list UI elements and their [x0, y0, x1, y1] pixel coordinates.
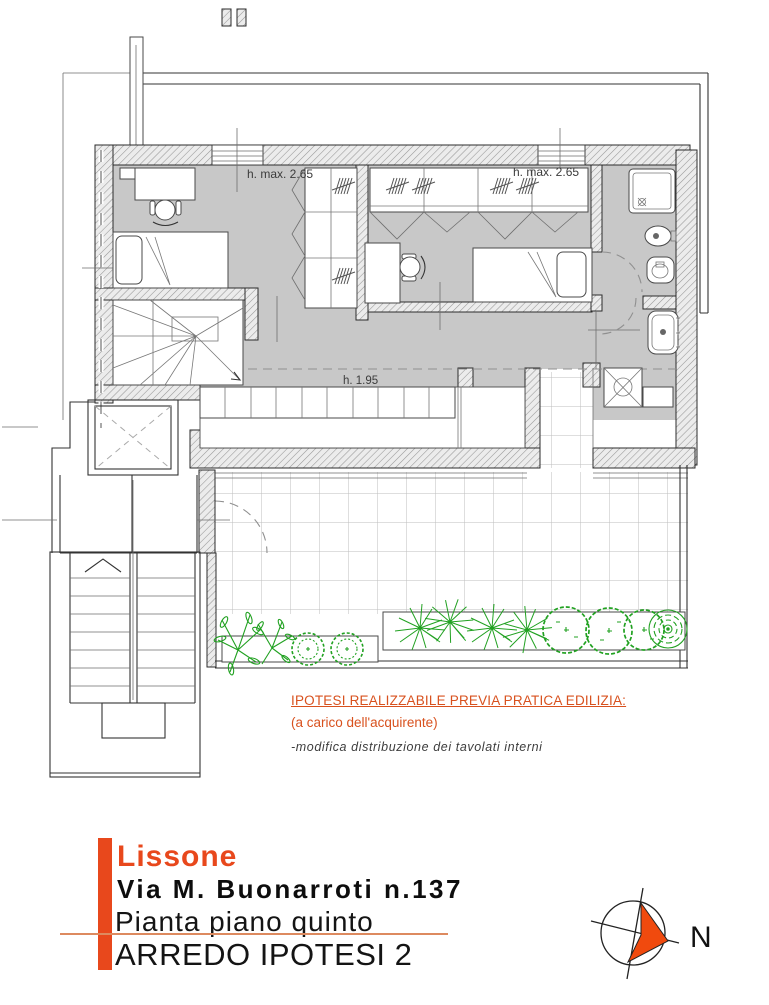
city-title: Lissone [117, 840, 237, 874]
desk [365, 243, 400, 303]
title-divider [60, 933, 448, 935]
single-bed-icon [113, 232, 228, 288]
roof-vent [237, 9, 246, 26]
stair-landing [2, 402, 230, 553]
height-label-right: h. max. 2.65 [513, 165, 579, 179]
floor-plan-sheet: h. max. 2.65 h. max. 2.65 h. 1.95 N IPOT… [0, 0, 769, 1005]
compass-rose: N [591, 888, 712, 979]
planter [222, 612, 685, 662]
north-arrow-icon [628, 903, 668, 962]
chimney [130, 37, 143, 150]
shower-icon [629, 169, 675, 213]
note-subtitle: (a carico dell'acquirente) [291, 712, 626, 734]
north-label: N [690, 921, 712, 954]
note-title: IPOTESI REALIZZABILE PREVIA PRATICA EDIL… [291, 690, 626, 712]
title-accent-bar [98, 838, 112, 970]
window [212, 145, 263, 165]
note-detail: -modifica distribuzione dei tavolati int… [291, 736, 626, 758]
toilet-icon [647, 257, 674, 283]
address-title: Via M. Buonarroti n.137 [117, 874, 463, 905]
eaves-cabinet-room [200, 387, 525, 448]
stair-direction-arrow [85, 559, 121, 572]
low-cabinet-row [200, 387, 455, 418]
roof-vent [222, 9, 231, 26]
floor-plan-drawing: h. max. 2.65 h. max. 2.65 h. 1.95 N [0, 0, 769, 1005]
common-staircase [50, 480, 200, 777]
single-bed-icon [473, 248, 592, 302]
height-label-left: h. max. 2.65 [247, 167, 313, 181]
washbasin-icon [648, 311, 680, 354]
notes-block: IPOTESI REALIZZABILE PREVIA PRATICA EDIL… [291, 690, 626, 758]
height-label-mid: h. 1.95 [343, 375, 378, 387]
internal-winder-stair [113, 300, 243, 385]
window [538, 145, 585, 165]
variant-title: ARREDO IPOTESI 2 [115, 937, 412, 973]
